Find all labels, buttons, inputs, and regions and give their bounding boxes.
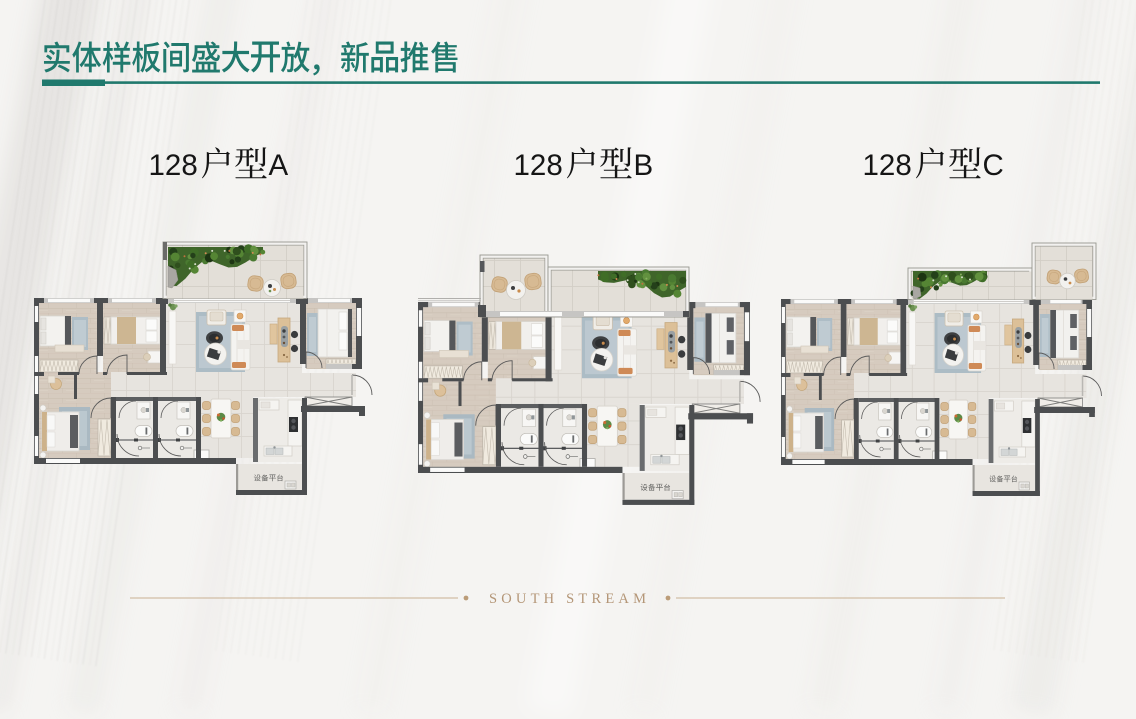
svg-text:128: 128 (863, 149, 912, 182)
svg-text:128: 128 (514, 149, 563, 182)
svg-text:128: 128 (149, 149, 198, 182)
svg-text:C: C (983, 149, 1004, 182)
svg-text:B: B (634, 149, 654, 182)
svg-text:SOUTH STREAM: SOUTH STREAM (489, 591, 650, 607)
svg-text:A: A (269, 149, 289, 182)
